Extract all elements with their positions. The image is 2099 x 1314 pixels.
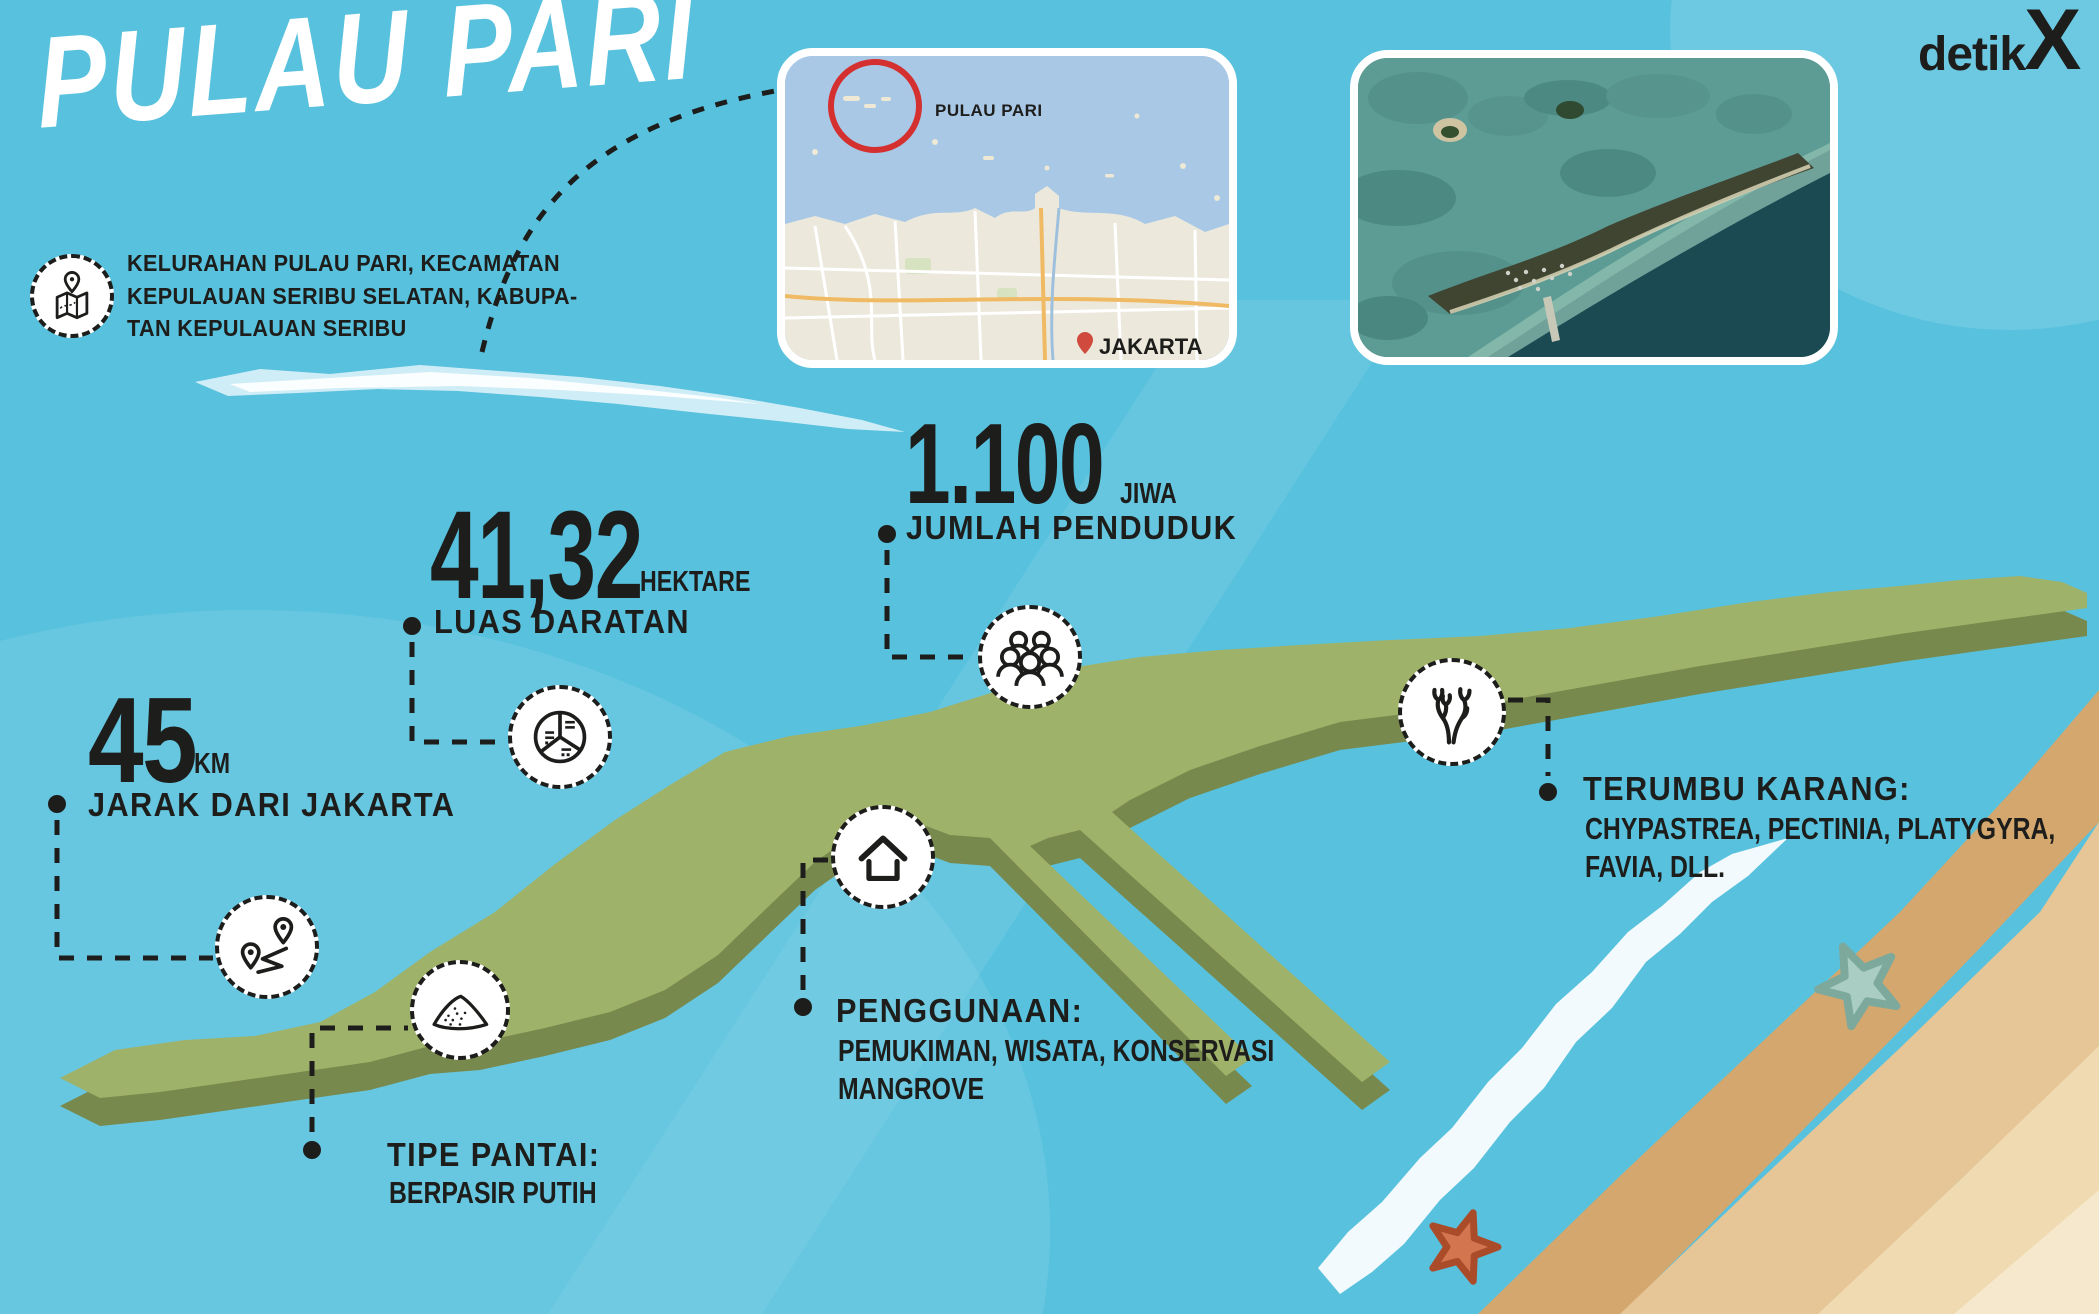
stat-coral-label: TERUMBU KARANG: <box>1583 770 1911 808</box>
stat-distance-value: 45 <box>88 690 196 790</box>
bullet-coral <box>1539 783 1557 801</box>
distance-icon-circle <box>215 895 319 999</box>
stat-area-unit: HEKTARE <box>640 566 750 599</box>
connector-usage <box>803 860 829 990</box>
map-island-label: PULAU PARI <box>935 101 1043 120</box>
logo-text: detik <box>1918 36 2025 74</box>
connector-beach <box>312 1028 408 1132</box>
usage-icon-circle <box>831 805 935 909</box>
map-with-pin-icon <box>41 265 103 327</box>
jakarta-map: PULAU PARI JAKARTA <box>785 56 1229 360</box>
infographic-pulau-pari: PULAU PARI detikX KELURAHAN PULAU PARI, … <box>0 0 2099 1314</box>
stat-area-value: 41,32 <box>430 505 642 608</box>
pie-chart-icon <box>523 700 597 774</box>
sand-pile-icon <box>424 974 496 1046</box>
location-text: KELURAHAN PULAU PARI, KECAMATAN KEPULAUA… <box>127 247 578 345</box>
stat-coral-details: CHYPASTREA, PECTINIA, PLATYGYRA, FAVIA, … <box>1585 810 2055 886</box>
stat-distance-unit: KM <box>194 748 230 781</box>
bullet-area <box>403 617 421 635</box>
location-line: TAN KEPULAUAN SERIBU <box>127 312 578 345</box>
satellite-photo <box>1358 58 1830 357</box>
coral-icon-circle <box>1398 658 1506 766</box>
stat-beach-detail: BERPASIR PUTIH <box>389 1174 597 1212</box>
people-group-icon <box>992 619 1068 695</box>
connector-population <box>887 550 975 657</box>
bullet-population <box>878 525 896 543</box>
detikx-logo: detikX <box>1918 6 2079 75</box>
house-icon <box>846 820 920 894</box>
stat-distance-label: JARAK DARI JAKARTA <box>88 786 455 824</box>
connector-distance <box>57 820 213 958</box>
stat-beach-label: TIPE PANTAI: <box>387 1136 600 1174</box>
population-icon-circle <box>978 605 1082 709</box>
stat-population-unit: JIWA <box>1120 478 1177 511</box>
map-city-label: JAKARTA <box>1099 334 1203 359</box>
stat-usage-label: PENGGUNAAN: <box>836 992 1083 1030</box>
stat-usage-detail-line: MANGROVE <box>838 1070 1274 1108</box>
bullet-beach <box>303 1141 321 1159</box>
stat-usage-details: PEMUKIMAN, WISATA, KONSERVASI MANGROVE <box>838 1032 1274 1108</box>
logo-x: X <box>2024 6 2079 75</box>
route-pins-icon <box>230 910 304 984</box>
stat-population-label: JUMLAH PENDUDUK <box>906 509 1237 547</box>
stat-usage-detail-line: PEMUKIMAN, WISATA, KONSERVASI <box>838 1032 1274 1070</box>
satellite-photo-inset <box>1350 50 1838 365</box>
connector-area <box>412 642 503 742</box>
location-line: KELURAHAN PULAU PARI, KECAMATAN <box>127 247 578 280</box>
stat-area-label: LUAS DARATAN <box>434 603 690 641</box>
area-icon-circle <box>508 685 612 789</box>
connector-coral <box>1508 700 1548 776</box>
coral-icon <box>1414 674 1490 750</box>
jakarta-map-inset: PULAU PARI JAKARTA <box>777 48 1237 368</box>
stat-coral-detail-line: FAVIA, DLL. <box>1585 848 2055 886</box>
stat-coral-detail-line: CHYPASTREA, PECTINIA, PLATYGYRA, <box>1585 810 2055 848</box>
beach-icon-circle <box>410 960 510 1060</box>
bullet-distance <box>48 795 66 813</box>
location-line: KEPULAUAN SERIBU SELATAN, KABUPA- <box>127 280 578 313</box>
bullet-usage <box>794 998 812 1016</box>
stat-population-value: 1.100 <box>905 418 1103 511</box>
location-map-icon-circle <box>30 254 114 338</box>
